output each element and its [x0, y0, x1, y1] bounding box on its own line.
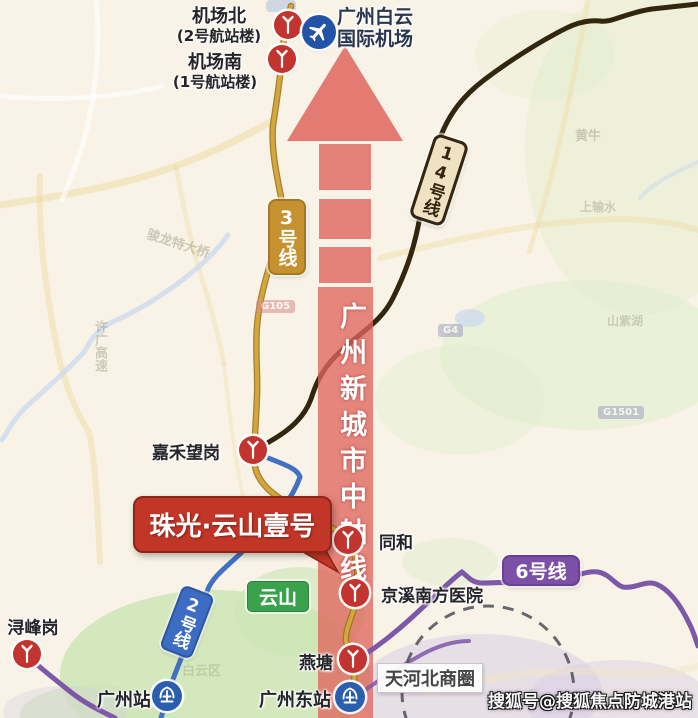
station-icon-guangzhoudongzhan: [335, 682, 365, 712]
station-subname: (2号航站楼): [177, 28, 261, 45]
watermark: 搜狐号@搜狐焦点防城港站: [488, 687, 692, 712]
g105-road-badge: G105: [256, 300, 295, 313]
badge-line3: 3号线: [268, 199, 306, 275]
station-label-jichangnan: 机场南 (1号航站楼): [173, 53, 257, 91]
guangzhou-metro-logo-icon: [242, 439, 264, 461]
china-railway-logo-icon: [338, 685, 362, 709]
station-label-yantang: 燕塘: [299, 649, 333, 674]
airport-icon: [302, 15, 336, 49]
shangshushui-label: 上输水: [580, 198, 616, 215]
station-name: 机场北: [177, 7, 261, 28]
station-icon-yantang: [339, 645, 367, 673]
station-icon-jiahewanggang: [239, 436, 267, 464]
expressway-label: 许广高速: [90, 320, 109, 372]
guangzhou-metro-map: 广州新城市中轴线 骏龙特大桥 许广高速 黄牛 上输水 山紫湖 白云区 G4 G1…: [0, 0, 698, 718]
station-icon-jichangnan: [268, 45, 296, 73]
guangzhou-metro-logo-icon: [342, 648, 364, 670]
station-icon-xunfenggang: [13, 640, 41, 668]
station-label-guangzhoudongzhan: 广州东站: [259, 686, 331, 712]
station-name: 机场南: [173, 53, 257, 74]
g4-road-badge: G4: [438, 324, 463, 337]
station-label-xunfenggang: 浔峰岗: [8, 614, 59, 639]
huangniu-label: 黄牛: [575, 125, 601, 144]
station-subname: (1号航站楼): [173, 74, 257, 91]
station-icon-jingxinanfangyiyuan: [341, 579, 369, 607]
station-label-tonghe: 同和: [379, 529, 413, 554]
tianhebei-area-label: 天河北商圈: [377, 663, 483, 693]
station-label-guangzhouzhan: 广州站: [97, 686, 151, 712]
guangzhou-metro-logo-icon: [271, 48, 293, 70]
shanzihu-label: 山紫湖: [607, 312, 643, 329]
airport-name-line1: 广州白云: [337, 7, 413, 29]
guangzhou-metro-logo-icon: [277, 14, 299, 36]
project-callout: 珠光·云山壹号: [133, 496, 332, 553]
station-label-jiahewanggang: 嘉禾望岗: [152, 439, 220, 464]
g1501-road-badge: G1501: [598, 406, 644, 419]
station-icon-jichangbei: [274, 11, 302, 39]
station-label-jichangbei: 机场北 (2号航站楼): [177, 7, 261, 45]
baiyunqu-label: 白云区: [182, 660, 221, 679]
airport-label: 广州白云 国际机场: [337, 7, 413, 51]
badge-line6: 6号线: [502, 555, 580, 586]
station-label-jingxinanfangyiyuan: 京溪南方医院: [381, 582, 483, 607]
airplane-icon: [302, 15, 336, 49]
station-icon-guangzhouzhan: [152, 681, 182, 711]
guangzhou-metro-logo-icon: [16, 643, 38, 665]
guangzhou-metro-logo-icon: [344, 582, 366, 604]
airport-name-line2: 国际机场: [337, 29, 413, 51]
china-railway-logo-icon: [155, 684, 179, 708]
yunshan-area-badge: 云山: [247, 581, 309, 612]
